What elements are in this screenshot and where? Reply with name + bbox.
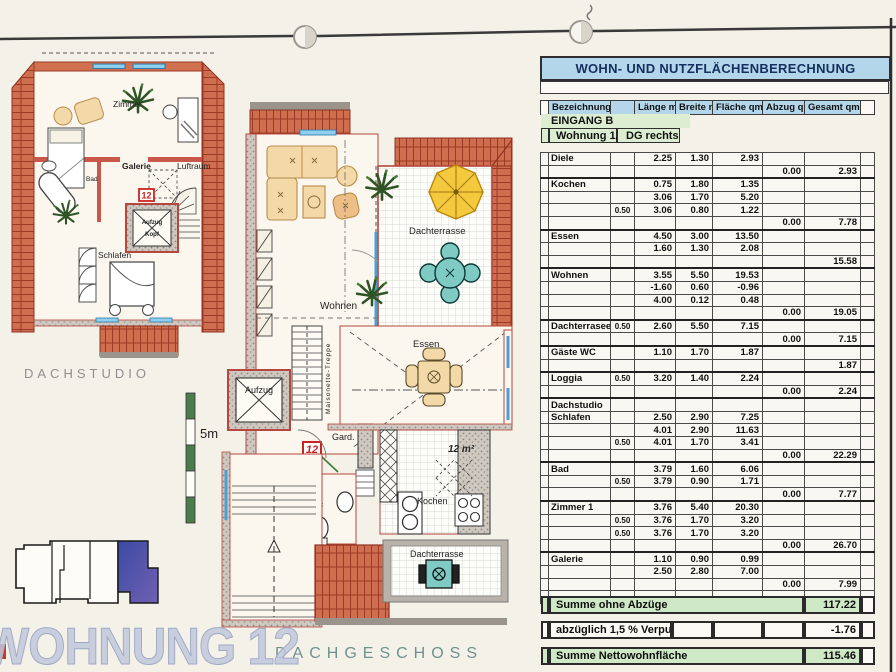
table-cell: 22.29 (805, 449, 861, 462)
table-cell (611, 462, 635, 475)
table-cell: 0.50 (611, 372, 635, 385)
table-cell (611, 566, 635, 579)
table-cell (763, 346, 805, 359)
table-cell: 4.50 (635, 230, 676, 243)
table-cell: 1.10 (635, 552, 676, 565)
table-cell (676, 359, 713, 372)
table-cell (549, 385, 611, 398)
table-cell (861, 424, 875, 437)
room-label-kochen: Kochen (417, 496, 448, 506)
table-cell (541, 488, 549, 501)
table-cell (611, 165, 635, 178)
table-cell (676, 165, 713, 178)
table-cell (635, 539, 676, 552)
table-cell (805, 437, 861, 450)
table-cell: 0.00 (763, 165, 805, 178)
table-cell (549, 566, 611, 579)
col-gesamt: Gesamt qm (805, 101, 861, 115)
table-cell: 3.76 (635, 527, 676, 540)
room-label-bad: Bad (86, 176, 98, 183)
table-cell: 3.00 (676, 230, 713, 243)
table-row: 0.503.060.801.22 (541, 204, 875, 217)
table-cell: 1.70 (676, 527, 713, 540)
table-row: 1.601.302.08 (541, 243, 875, 256)
summary-total-label: Summe ohne Abzüge (549, 596, 804, 614)
dachstudio-unit-marker: 12 (141, 191, 151, 201)
table-cell (549, 527, 611, 540)
table-cell (541, 514, 549, 527)
dachgeschoss-plan: Aufzug Maisonette-Treppe Gard. 12 (222, 102, 512, 662)
table-cell (541, 552, 549, 565)
header-edge-cell (541, 101, 549, 115)
table-title-subbar (540, 81, 889, 94)
table-cell (611, 424, 635, 437)
summary-deduction-value: -1.76 (804, 621, 861, 639)
table-cell: 2.90 (676, 424, 713, 437)
table-cell (676, 333, 713, 346)
table-cell (861, 385, 875, 398)
table-cell (861, 191, 875, 204)
summary-deduction-label: abzüglich 1,5 % Verputz (549, 621, 672, 639)
table-cell: 1.30 (676, 153, 713, 166)
summary-edge (541, 647, 549, 665)
col-factor (611, 101, 635, 115)
table-cell: 1.70 (676, 346, 713, 359)
summary-net-value: 115.46 (804, 647, 861, 665)
table-cell (549, 165, 611, 178)
table-row: 15.58 (541, 255, 875, 268)
table-cell (549, 307, 611, 320)
table-cell (861, 307, 875, 320)
table-cell: 2.24 (713, 372, 763, 385)
table-cell: 3.79 (635, 475, 676, 488)
table-cell (805, 372, 861, 385)
summary-total-value: 117.22 (804, 596, 861, 614)
table-row: 4.000.120.48 (541, 294, 875, 307)
table-cell (805, 191, 861, 204)
table-cell (861, 411, 875, 424)
table-cell (549, 191, 611, 204)
table-cell (763, 552, 805, 565)
table-cell: 0.00 (763, 216, 805, 229)
table-cell (611, 153, 635, 166)
summary-empty-cell (672, 621, 713, 639)
table-cell (861, 578, 875, 591)
table-cell (611, 255, 635, 268)
table-row: 0.503.761.703.20 (541, 514, 875, 527)
table-cell (611, 178, 635, 191)
table-cell (541, 153, 549, 166)
table-cell: 0.00 (763, 449, 805, 462)
table-cell (611, 230, 635, 243)
table-cell (805, 552, 861, 565)
table-row: Diele2.251.302.93 (541, 153, 875, 166)
table-cell: 3.20 (713, 527, 763, 540)
table-cell (861, 153, 875, 166)
table-cell (611, 281, 635, 294)
table-cell (541, 333, 549, 346)
table-cell (713, 578, 763, 591)
table-cell: 0.00 (763, 333, 805, 346)
table-cell (541, 462, 549, 475)
table-cell (676, 398, 713, 411)
summary-edge (541, 621, 549, 639)
header-edge-cell (861, 101, 875, 115)
table-cell (541, 539, 549, 552)
table-cell: Loggia (549, 372, 611, 385)
table-cell (611, 268, 635, 281)
table-cell: 3.06 (635, 204, 676, 217)
table-cell (861, 320, 875, 333)
room-label-aufzug-kopf-2: Kopf (145, 232, 160, 238)
scale-label: 5m (200, 426, 218, 441)
table-cell (549, 449, 611, 462)
room-label-aufzug-kopf-1: Aufzug (142, 220, 163, 226)
table-cell (763, 566, 805, 579)
table-cell (763, 372, 805, 385)
table-cell: 5.40 (676, 501, 713, 514)
table-cell (611, 488, 635, 501)
col-bezeichnung: Bezeichnung (549, 101, 611, 115)
table-cell: 1.80 (676, 178, 713, 191)
table-cell: 1.70 (676, 437, 713, 450)
table-row: 0.503.761.703.20 (541, 527, 875, 540)
table-cell: 2.93 (713, 153, 763, 166)
dachgeschoss-caption: DACHGESCHOSS (275, 645, 483, 662)
table-cell (611, 411, 635, 424)
table-cell: 1.30 (676, 243, 713, 256)
table-cell (549, 204, 611, 217)
table-cell (676, 539, 713, 552)
table-cell (611, 333, 635, 346)
summary-row-net: Summe Nettowohnfläche 115.46 (541, 647, 875, 665)
table-row: 4.012.9011.63 (541, 424, 875, 437)
table-cell: 19.05 (805, 307, 861, 320)
table-cell: 3.41 (713, 437, 763, 450)
table-cell (549, 333, 611, 346)
table-cell: 1.35 (713, 178, 763, 191)
table-cell (541, 385, 549, 398)
table-cell (861, 333, 875, 346)
table-cell: 0.50 (611, 475, 635, 488)
table-cell (861, 514, 875, 527)
table-cell (763, 462, 805, 475)
table-cell (611, 346, 635, 359)
col-abzug: Abzug qm (763, 101, 805, 115)
table-cell (541, 307, 549, 320)
table-cell (611, 449, 635, 462)
table-cell (541, 566, 549, 579)
table-row: 0.0019.05 (541, 307, 875, 320)
table-cell (763, 178, 805, 191)
unit-name: Wohnung 12 (549, 128, 617, 143)
table-cell: Dachstudio (549, 398, 611, 411)
table-row: 0.002.93 (541, 165, 875, 178)
table-cell (541, 475, 549, 488)
table-cell: 0.00 (763, 488, 805, 501)
table-cell: 3.76 (635, 514, 676, 527)
table-cell: 0.00 (763, 578, 805, 591)
summary-edge (861, 621, 875, 639)
summary-edge (541, 596, 549, 614)
table-cell (635, 255, 676, 268)
table-cell (861, 165, 875, 178)
table-cell: 3.20 (713, 514, 763, 527)
table-cell (805, 566, 861, 579)
table-cell (713, 539, 763, 552)
table-cell: 2.50 (635, 566, 676, 579)
table-cell: 1.87 (713, 346, 763, 359)
table-cell (713, 488, 763, 501)
table-cell (676, 216, 713, 229)
table-cell: 0.50 (611, 437, 635, 450)
summary-empty-cell (713, 621, 763, 639)
table-cell (676, 307, 713, 320)
room-label-aufzug: Aufzug (245, 385, 273, 395)
table-cell: 2.08 (713, 243, 763, 256)
table-cell (541, 255, 549, 268)
table-cell: 2.90 (676, 411, 713, 424)
table-cell (861, 230, 875, 243)
table-cell: Bad (549, 462, 611, 475)
table-row: Zimmer 13.765.4020.30 (541, 501, 875, 514)
table-cell: 11.63 (713, 424, 763, 437)
table-cell (713, 359, 763, 372)
table-cell (541, 501, 549, 514)
table-cell (611, 539, 635, 552)
table-cell (541, 230, 549, 243)
table-row: -1.600.60-0.96 (541, 281, 875, 294)
table-cell (541, 411, 549, 424)
table-cell: 4.00 (635, 294, 676, 307)
table-cell (549, 243, 611, 256)
area-note: 12 m² (448, 444, 475, 455)
table-cell (763, 255, 805, 268)
table-cell: 1.87 (805, 359, 861, 372)
table-cell (763, 204, 805, 217)
table-row: 0.007.78 (541, 216, 875, 229)
table-cell (611, 243, 635, 256)
table-cell (713, 398, 763, 411)
table-cell (763, 230, 805, 243)
table-cell (541, 178, 549, 191)
table-cell (861, 178, 875, 191)
table-cell: 15.58 (805, 255, 861, 268)
summary-net-label: Summe Nettowohnfläche (549, 647, 804, 665)
key-plan (16, 541, 158, 603)
table-cell (861, 255, 875, 268)
table-cell: 7.25 (713, 411, 763, 424)
scale-bar: 5m (186, 393, 218, 523)
table-cell: 7.99 (805, 578, 861, 591)
table-cell (763, 475, 805, 488)
table-cell (635, 333, 676, 346)
table-cell: 1.40 (676, 372, 713, 385)
table-cell: 0.50 (611, 320, 635, 333)
table-cell (805, 204, 861, 217)
table-cell (763, 398, 805, 411)
table-cell (763, 191, 805, 204)
table-cell: 26.70 (805, 539, 861, 552)
table-cell (635, 578, 676, 591)
table-row: Bad3.791.606.06 (541, 462, 875, 475)
table-cell: 0.00 (763, 539, 805, 552)
table-cell (611, 294, 635, 307)
table-cell (861, 488, 875, 501)
table-cell (805, 398, 861, 411)
table-cell (805, 294, 861, 307)
table-cell (541, 578, 549, 591)
table-cell (541, 191, 549, 204)
table-cell (805, 462, 861, 475)
table-cell (805, 281, 861, 294)
table-cell: 7.15 (713, 320, 763, 333)
table-row: 0.007.15 (541, 333, 875, 346)
table-cell (861, 294, 875, 307)
table-cell (549, 281, 611, 294)
table-cell: 2.80 (676, 566, 713, 579)
table-cell: Wohnen (549, 268, 611, 281)
entrance-row: EINGANG B (541, 114, 690, 128)
table-cell (805, 424, 861, 437)
table-cell (713, 307, 763, 320)
table-cell: Dachterrasee (549, 320, 611, 333)
table-cell: 0.50 (611, 514, 635, 527)
table-cell: 19.53 (713, 268, 763, 281)
table-cell (549, 514, 611, 527)
table-cell: Galerie (549, 552, 611, 565)
area-table-header: Bezeichnung Länge m Breite m Fläche qm A… (540, 100, 875, 115)
table-cell (611, 578, 635, 591)
table-cell: 7.15 (805, 333, 861, 346)
room-label-galerie: Galerie (122, 161, 151, 171)
table-cell (611, 385, 635, 398)
table-cell (541, 359, 549, 372)
table-cell: Gäste WC (549, 346, 611, 359)
table-cell (763, 514, 805, 527)
table-cell: Zimmer 1 (549, 501, 611, 514)
table-cell: 3.55 (635, 268, 676, 281)
table-cell (635, 216, 676, 229)
table-title: WOHN- UND NUTZFLÄCHENBERECHNUNG (540, 56, 891, 81)
table-cell (713, 449, 763, 462)
table-cell (541, 281, 549, 294)
table-cell: 1.70 (676, 191, 713, 204)
table-cell (861, 539, 875, 552)
table-cell (861, 527, 875, 540)
table-cell (676, 385, 713, 398)
table-cell: Diele (549, 153, 611, 166)
table-cell (805, 230, 861, 243)
table-cell (549, 255, 611, 268)
table-cell (676, 255, 713, 268)
table-cell (861, 475, 875, 488)
table-cell (805, 514, 861, 527)
table-cell (805, 475, 861, 488)
table-cell (713, 385, 763, 398)
table-cell (541, 346, 549, 359)
table-cell (805, 411, 861, 424)
table-cell (805, 346, 861, 359)
table-cell: Schlafen (549, 411, 611, 424)
table-cell (861, 501, 875, 514)
table-row: 0.0022.29 (541, 449, 875, 462)
table-cell (549, 539, 611, 552)
table-row: Schlafen2.502.907.25 (541, 411, 875, 424)
table-cell (635, 385, 676, 398)
table-cell: 5.50 (676, 268, 713, 281)
table-cell (713, 165, 763, 178)
table-cell: 0.60 (676, 281, 713, 294)
room-label-wohnen: Wohnen (320, 301, 357, 312)
col-breite: Breite m (676, 101, 713, 115)
table-cell (861, 281, 875, 294)
table-cell (549, 359, 611, 372)
table-cell: 1.10 (635, 346, 676, 359)
room-label-schlafen: Schlafen (98, 250, 131, 260)
table-cell (611, 307, 635, 320)
table-cell (763, 268, 805, 281)
table-cell (861, 204, 875, 217)
table-row: 0.002.24 (541, 385, 875, 398)
table-cell: 7.00 (713, 566, 763, 579)
table-cell (763, 437, 805, 450)
table-cell (611, 359, 635, 372)
table-cell: 0.99 (713, 552, 763, 565)
table-cell (861, 398, 875, 411)
table-cell (861, 462, 875, 475)
dachstudio-plan: 12 Aufzug Kopf Zimmer Bad Galerie Luftra… (12, 53, 224, 381)
area-table-body: Diele2.251.302.930.002.93Kochen0.751.801… (541, 153, 875, 604)
table-cell (549, 437, 611, 450)
table-cell (676, 449, 713, 462)
table-cell (541, 320, 549, 333)
table-row: 0.503.790.901.71 (541, 475, 875, 488)
table-cell: 0.48 (713, 294, 763, 307)
col-flaeche: Fläche qm (713, 101, 763, 115)
table-row: 1.87 (541, 359, 875, 372)
room-label-luftraum: Luftraum (177, 161, 211, 171)
table-cell (763, 359, 805, 372)
table-cell (805, 527, 861, 540)
room-label-gard: Gard. (332, 432, 355, 442)
table-cell: 3.79 (635, 462, 676, 475)
table-cell (763, 501, 805, 514)
dachstudio-caption: DACHSTUDIO (24, 366, 150, 381)
table-cell (541, 243, 549, 256)
unit-location: DG rechts (617, 128, 680, 143)
table-cell: 3.20 (635, 372, 676, 385)
table-cell: 7.77 (805, 488, 861, 501)
room-label-essen: Essen (413, 339, 439, 350)
table-cell (763, 281, 805, 294)
table-cell: 0.00 (763, 307, 805, 320)
summary-empty-cell (763, 621, 804, 639)
table-cell (763, 424, 805, 437)
table-cell (861, 449, 875, 462)
table-cell (861, 243, 875, 256)
table-row: 0.007.99 (541, 578, 875, 591)
area-table: Diele2.251.302.930.002.93Kochen0.751.801… (540, 152, 875, 604)
table-cell (676, 578, 713, 591)
table-cell (541, 372, 549, 385)
table-cell (549, 424, 611, 437)
table-cell (635, 165, 676, 178)
table-cell (541, 294, 549, 307)
table-cell (549, 488, 611, 501)
table-row: Dachstudio (541, 398, 875, 411)
table-cell (861, 552, 875, 565)
